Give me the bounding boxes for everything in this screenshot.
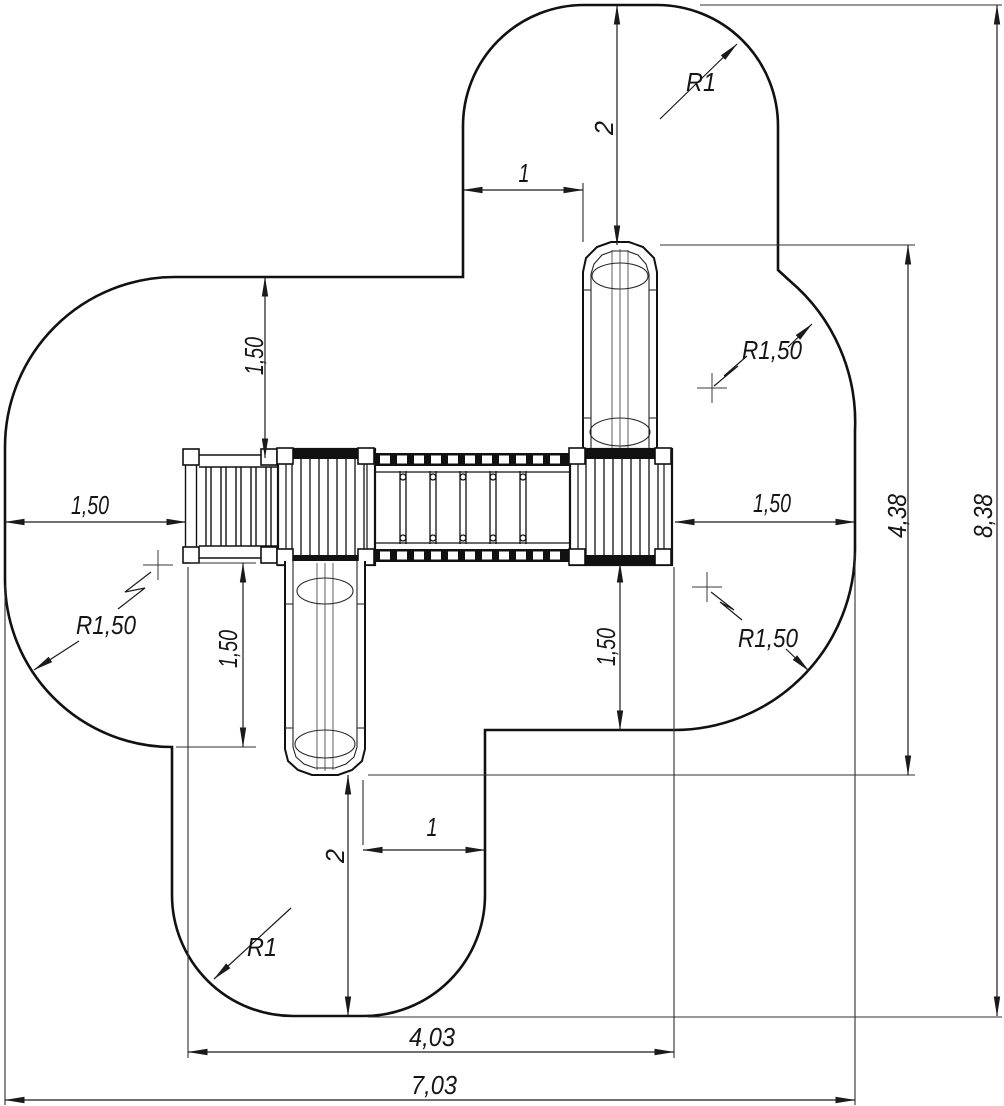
playground-plan-drawing: 1,50 1,50 2 1 R1 R1,50 1,50 4,38 8,38 R1… [0, 0, 1004, 1106]
access-ramp [183, 449, 278, 563]
dim-corner-radius-bottom: R1 [247, 932, 277, 962]
radius-leaders [34, 44, 812, 979]
dim-clearance-bottom-left: 1,50 [213, 630, 243, 668]
bridge [375, 453, 570, 562]
dim-slide-bottom-offset: 1 [427, 812, 438, 842]
dim-corner-radius-left: R1,50 [76, 610, 136, 640]
tower-platform-a [277, 448, 375, 565]
playground-equipment [183, 242, 672, 775]
dim-slide-bottom-zone: 2 [320, 848, 350, 863]
dim-clearance-top: 1,50 [239, 337, 269, 375]
dim-slide-top-offset: 1 [519, 158, 530, 188]
dim-slide-top-zone: 2 [589, 120, 619, 135]
slide-top [583, 242, 657, 451]
dim-overall-height: 8,38 [968, 494, 998, 538]
dim-overall-width: 7,03 [411, 1070, 457, 1100]
dim-clearance-right: 1,50 [753, 488, 791, 518]
slide-bottom [285, 561, 365, 775]
tower-platform-b [569, 448, 672, 565]
drawing-canvas: 1,50 1,50 2 1 R1 R1,50 1,50 4,38 8,38 R1… [0, 0, 1004, 1106]
dim-clearance-left: 1,50 [71, 490, 109, 520]
dim-clearance-bottom-right: 1,50 [591, 628, 621, 666]
dimension-labels: 1,50 1,50 2 1 R1 R1,50 1,50 4,38 8,38 R1… [71, 67, 998, 1100]
dim-corner-radius-right-bottom: R1,50 [738, 623, 798, 653]
dim-corner-radius-right-top: R1,50 [742, 335, 802, 365]
dim-corner-radius-top: R1 [686, 67, 716, 97]
dim-equipment-width: 4,03 [409, 1022, 455, 1052]
dim-equipment-height: 4,38 [882, 494, 912, 538]
